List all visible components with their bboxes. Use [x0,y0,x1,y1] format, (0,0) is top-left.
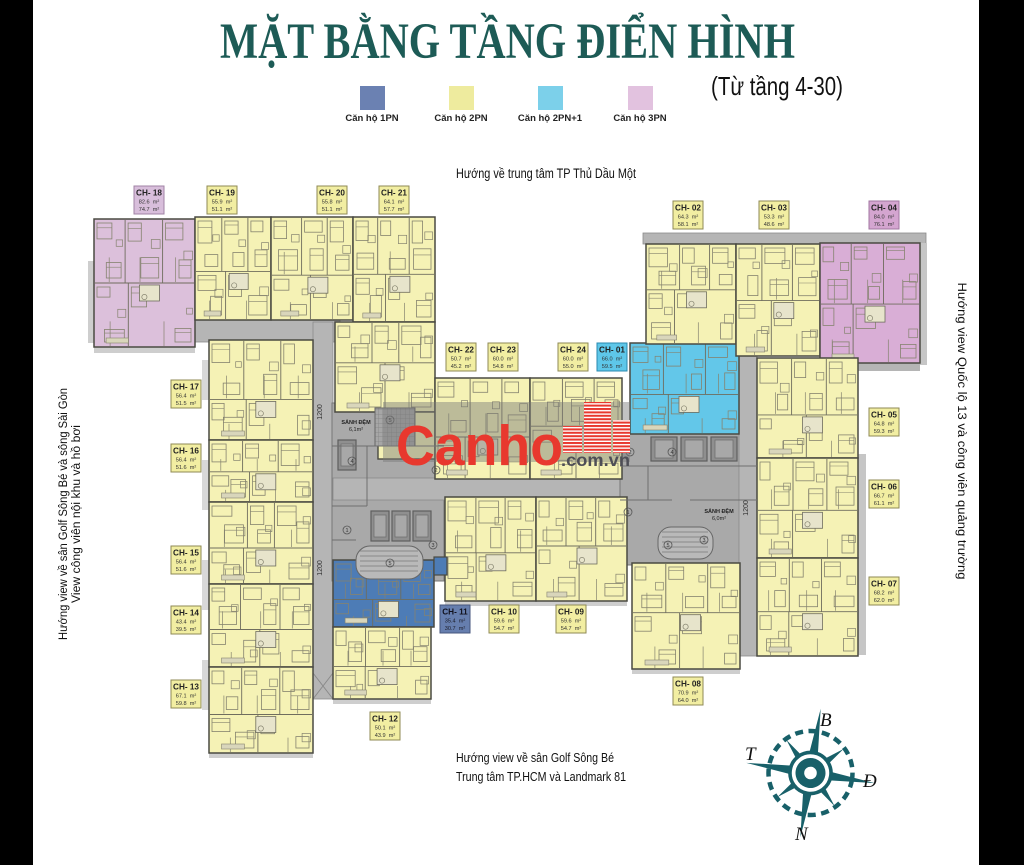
svg-text:59.5 m²: 59.5 m² [602,364,623,370]
svg-text:35.4 m²: 35.4 m² [445,619,466,625]
svg-text:50.7 m²: 50.7 m² [451,357,472,363]
svg-text:CH- 21: CH- 21 [381,189,407,198]
svg-text:CH- 16: CH- 16 [173,447,199,456]
svg-text:SẢNH ĐỆM: SẢNH ĐỆM [704,507,734,515]
svg-text:B: B [820,710,832,731]
svg-text:CH- 20: CH- 20 [319,189,345,198]
svg-text:CH- 09: CH- 09 [558,608,584,617]
svg-text:51.5 m²: 51.5 m² [176,401,197,407]
svg-text:Hướng view Quốc lộ 13 và công: Hướng view Quốc lộ 13 và công viên quảng… [955,283,967,580]
svg-text:5: 5 [388,561,391,567]
svg-text:Căn hộ 3PN: Căn hộ 3PN [613,113,666,124]
svg-text:74.7 m²: 74.7 m² [139,207,160,213]
svg-text:CH- 04: CH- 04 [871,204,897,213]
svg-text:Căn hộ 2PN+1: Căn hộ 2PN+1 [518,113,583,124]
svg-text:Hướng về trung tâm TP Thủ Dầu: Hướng về trung tâm TP Thủ Dầu Một [456,166,636,181]
svg-text:76.1 m²: 76.1 m² [874,222,895,228]
svg-text:55.9 m²: 55.9 m² [212,200,233,206]
svg-text:51.1 m²: 51.1 m² [322,207,343,213]
svg-text:67.1 m²: 67.1 m² [176,694,197,700]
svg-text:45.2 m²: 45.2 m² [451,364,472,370]
svg-text:55.8 m²: 55.8 m² [322,200,343,206]
svg-text:51.6 m²: 51.6 m² [176,567,197,573]
svg-text:56.4 m²: 56.4 m² [176,560,197,566]
svg-text:64.8 m²: 64.8 m² [874,422,895,428]
svg-text:51.6 m²: 51.6 m² [176,465,197,471]
svg-text:48.6 m²: 48.6 m² [764,222,785,228]
svg-text:CH- 14: CH- 14 [173,609,199,618]
svg-text:62.0 m²: 62.0 m² [874,598,895,604]
svg-text:1200: 1200 [743,500,750,516]
svg-text:4: 4 [670,450,673,456]
svg-text:84.0 m²: 84.0 m² [874,215,895,221]
svg-text:64.3 m²: 64.3 m² [678,215,699,221]
svg-text:CH- 07: CH- 07 [871,580,897,589]
svg-text:CH- 13: CH- 13 [173,683,199,692]
svg-text:Trung tâm TP.HCM và Landmark 8: Trung tâm TP.HCM và Landmark 81 [456,769,626,784]
svg-text:54.7 m²: 54.7 m² [494,626,515,632]
svg-text:70.9 m²: 70.9 m² [678,691,699,697]
svg-text:53.3 m²: 53.3 m² [764,215,785,221]
svg-text:3: 3 [431,543,434,549]
svg-text:CH- 05: CH- 05 [871,411,897,420]
svg-text:59.6 m²: 59.6 m² [494,619,515,625]
svg-text:Căn hộ 1PN: Căn hộ 1PN [345,113,398,124]
svg-text:Căn hộ 2PN: Căn hộ 2PN [434,113,487,124]
svg-text:5: 5 [666,543,669,549]
svg-text:CH- 22: CH- 22 [448,346,474,355]
svg-text:6,1m²: 6,1m² [349,427,363,433]
svg-text:1: 1 [626,510,629,516]
svg-text:MẶT BẰNG TẦNG ĐIỂN HÌNH: MẶT BẰNG TẦNG ĐIỂN HÌNH [220,12,795,70]
svg-text:CH- 06: CH- 06 [871,483,897,492]
svg-text:CH- 15: CH- 15 [173,549,199,558]
svg-text:SẢNH ĐỆM: SẢNH ĐỆM [341,418,371,426]
svg-text:56.4 m²: 56.4 m² [176,394,197,400]
svg-text:6,0m²: 6,0m² [712,516,726,522]
svg-text:CH- 19: CH- 19 [209,189,235,198]
svg-text:1: 1 [345,528,348,534]
svg-text:39.5 m²: 39.5 m² [176,627,197,633]
svg-text:CH- 01: CH- 01 [599,346,625,355]
svg-text:68.2 m²: 68.2 m² [874,591,895,597]
svg-text:4: 4 [350,459,353,465]
svg-text:58.1 m²: 58.1 m² [678,222,699,228]
svg-text:61.1 m²: 61.1 m² [874,501,895,507]
svg-text:CH- 24: CH- 24 [560,346,586,355]
svg-text:51.1 m²: 51.1 m² [212,207,233,213]
svg-text:55.0 m²: 55.0 m² [563,364,584,370]
svg-text:43.4 m²: 43.4 m² [176,620,197,626]
svg-text:Hướng view về sân Golf Sông Bé: Hướng view về sân Golf Sông Bé [456,750,614,765]
svg-text:50.1 m²: 50.1 m² [375,726,396,732]
svg-text:CH- 10: CH- 10 [491,608,517,617]
svg-text:CH- 12: CH- 12 [372,715,398,724]
svg-text:Hướng view về sân Golf Sông Bé: Hướng view về sân Golf Sông Bé và sông S… [58,388,70,640]
svg-text:1200: 1200 [317,404,324,420]
svg-text:64.0 m²: 64.0 m² [678,698,699,704]
svg-text:30.7 m²: 30.7 m² [445,626,466,632]
svg-text:59.8 m²: 59.8 m² [176,701,197,707]
svg-text:T: T [745,744,757,765]
svg-text:60.0 m²: 60.0 m² [493,357,514,363]
svg-text:CH- 18: CH- 18 [136,189,162,198]
svg-text:54.8 m²: 54.8 m² [493,364,514,370]
svg-text:59.6 m²: 59.6 m² [561,619,582,625]
svg-text:CH- 11: CH- 11 [442,608,468,617]
svg-text:CH- 08: CH- 08 [675,680,701,689]
svg-text:64.1 m²: 64.1 m² [384,200,405,206]
svg-text:66.7 m²: 66.7 m² [874,494,895,500]
svg-text:1200: 1200 [317,560,324,576]
svg-text:43.9 m²: 43.9 m² [375,733,396,739]
svg-text:60.0 m²: 60.0 m² [563,357,584,363]
svg-text:66.0 m²: 66.0 m² [602,357,623,363]
svg-text:54.7 m²: 54.7 m² [561,626,582,632]
svg-text:N: N [794,824,809,845]
svg-text:CH- 03: CH- 03 [761,204,787,213]
svg-text:CH- 02: CH- 02 [675,204,701,213]
svg-text:CH- 17: CH- 17 [173,383,199,392]
svg-text:82.6 m²: 82.6 m² [139,200,160,206]
svg-text:View công viên nội khu và hồ b: View công viên nội khu và hồ bơi [71,425,83,603]
svg-text:CH- 23: CH- 23 [490,346,516,355]
svg-text:56.4 m²: 56.4 m² [176,458,197,464]
svg-text:(Từ tầng 4-30): (Từ tầng 4-30) [711,71,843,101]
svg-text:3: 3 [702,538,705,544]
svg-text:Đ: Đ [862,771,877,792]
svg-text:57.7 m²: 57.7 m² [384,207,405,213]
svg-text:Canho: Canho [396,414,563,478]
svg-text:59.3 m²: 59.3 m² [874,429,895,435]
